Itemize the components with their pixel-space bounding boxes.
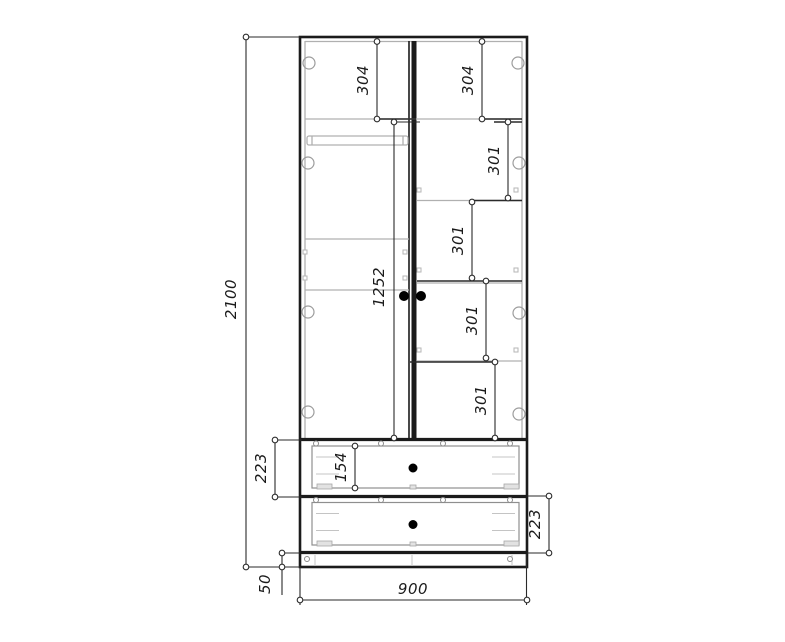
center-divider: [412, 41, 417, 438]
drawer-2-knob: [409, 521, 417, 529]
pin-mark: [514, 348, 518, 352]
foot-mark: [508, 557, 513, 562]
pin-mark: [514, 268, 518, 272]
dim-drawer-1-height: 223: [252, 437, 302, 500]
fitting-mark: [314, 498, 319, 503]
runner-mark: [410, 542, 416, 546]
hinge-icon: [302, 406, 314, 418]
drawing-canvas: 2100 304 304 301 301 301 301: [0, 0, 785, 642]
pin-mark: [417, 348, 421, 352]
hinge-icon: [302, 157, 314, 169]
dim-right-compartment-3: 301: [463, 278, 489, 361]
fitting-mark: [314, 441, 319, 446]
hanging-rail: [307, 136, 408, 145]
runner-mark: [504, 541, 519, 546]
dim-label-drawer-1: 223: [252, 453, 270, 483]
dim-left-top-compartment: 304: [354, 39, 380, 122]
hinge-icon: [513, 307, 525, 319]
dim-label-right-4: 301: [472, 385, 490, 415]
pin-mark: [303, 276, 307, 280]
dim-label-plinth: 50: [256, 574, 274, 594]
dim-label-right-top: 304: [459, 65, 477, 95]
runner-mark: [317, 484, 332, 489]
dim-label-right-1: 301: [485, 145, 503, 175]
pin-mark: [403, 276, 407, 280]
dim-label-total-height: 2100: [222, 279, 240, 319]
pin-mark: [403, 250, 407, 254]
dim-label-left-top: 304: [354, 65, 372, 95]
dim-label-drawer-front: 154: [332, 452, 350, 482]
drawer-1-knob: [409, 464, 417, 472]
dim-label-right-2: 301: [449, 225, 467, 255]
fitting-mark: [508, 441, 513, 446]
dim-right-compartment-4: 301: [472, 359, 498, 441]
fitting-mark: [508, 498, 513, 503]
dim-label-drawer-2: 223: [526, 509, 544, 539]
fitting-mark: [441, 441, 446, 446]
dim-label-door-height: 1252: [370, 267, 388, 307]
pin-mark: [417, 188, 421, 192]
pin-mark: [417, 268, 421, 272]
plinth: [305, 555, 513, 566]
dim-right-top-compartment: 304: [459, 39, 485, 122]
drawer-2: [312, 498, 519, 547]
dim-right-compartment-1: 301: [485, 119, 511, 201]
fitting-mark: [379, 498, 384, 503]
pin-mark: [514, 188, 518, 192]
pin-mark: [303, 250, 307, 254]
foot-mark: [305, 557, 310, 562]
runner-mark: [317, 541, 332, 546]
hinge-icon: [513, 408, 525, 420]
runner-mark: [410, 485, 416, 489]
rail-tube: [307, 136, 408, 145]
runner-mark: [504, 484, 519, 489]
fitting-mark: [379, 441, 384, 446]
dim-drawer-2-height: 223: [526, 493, 552, 556]
left-door-knob: [400, 292, 409, 301]
fitting-mark: [441, 498, 446, 503]
dim-label-total-width: 900: [398, 580, 428, 598]
hinge-icon: [302, 306, 314, 318]
dim-total-height: 2100: [222, 34, 300, 570]
dim-drawer-front-height: 154: [332, 443, 358, 491]
dim-label-right-3: 301: [463, 305, 481, 335]
hinge-icon: [513, 157, 525, 169]
dim-right-compartment-2: 301: [449, 199, 475, 281]
dim-plinth-height: 50: [256, 550, 300, 595]
dim-total-width: 900: [297, 554, 530, 605]
wardrobe-technical-drawing: 2100 304 304 301 301 301 301: [0, 0, 785, 642]
right-door-knob: [417, 292, 426, 301]
